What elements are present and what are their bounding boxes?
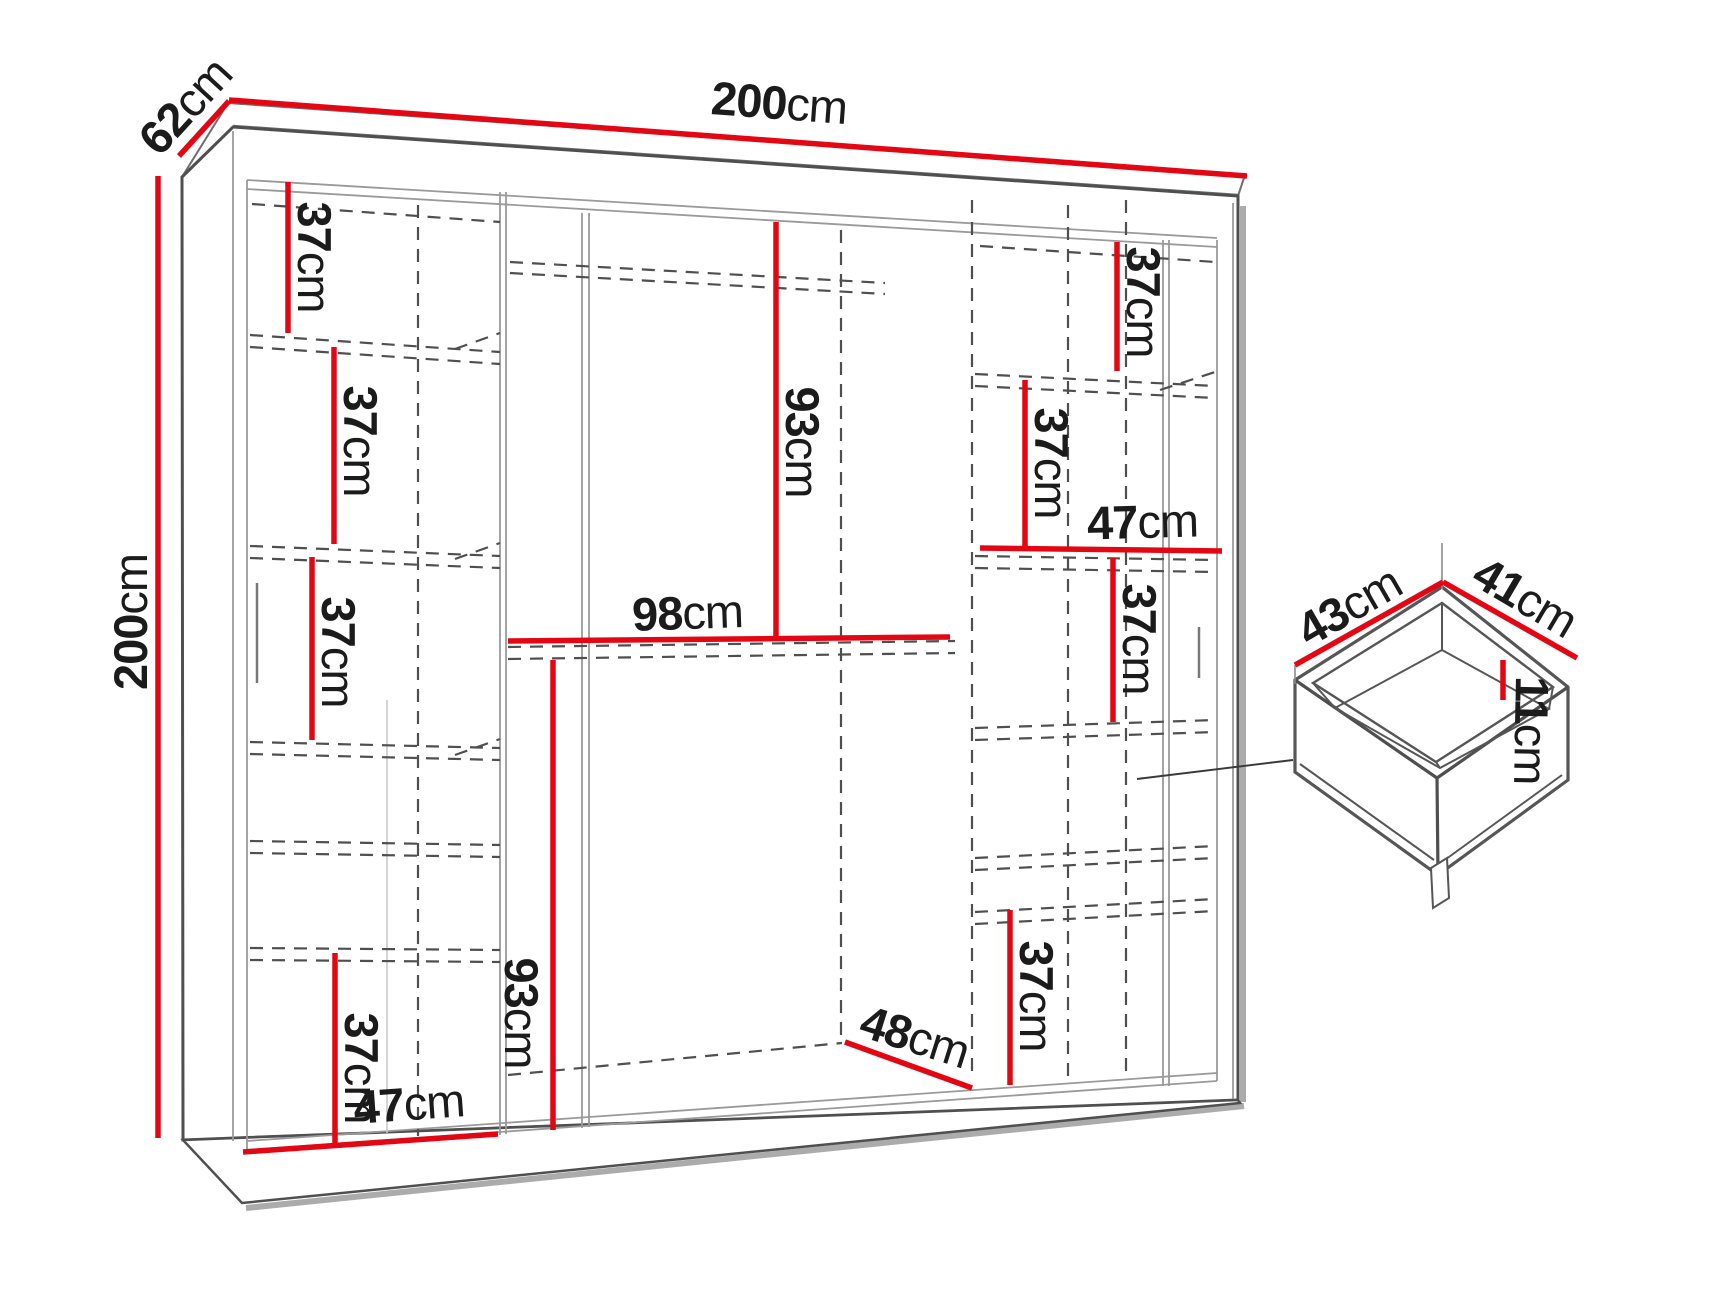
dim-label-right-shelf-3: 37cm: [1113, 584, 1166, 695]
dim-label-left-shelf-2: 37cm: [334, 386, 387, 497]
dim-label-left-shelf-1: 37cm: [288, 202, 341, 313]
dim-label-overall-height: 200cm: [104, 554, 157, 690]
dim-label-right-width: 47cm: [1086, 494, 1198, 550]
dim-label-middle-lower-height: 93cm: [495, 958, 548, 1069]
dim-label-right-shelf-4: 37cm: [1010, 941, 1063, 1052]
dim-label-drawer-inner-height: 11cm: [1504, 676, 1559, 785]
dim-label-right-shelf-2: 37cm: [1025, 408, 1078, 519]
dim-label-left-bottom-width: 47cm: [352, 1073, 466, 1134]
diagram-canvas: 200cm 62cm 200cm 37cm 37cm 37cm 37cm 47c…: [0, 0, 1726, 1295]
dim-label-middle-hanging-height: 93cm: [776, 387, 829, 498]
wardrobe-dimension-diagram: 200cm 62cm 200cm 37cm 37cm 37cm 37cm 47c…: [0, 0, 1726, 1295]
dim-label-left-shelf-3: 37cm: [312, 597, 365, 708]
dim-label-middle-shelf-width: 98cm: [631, 584, 744, 641]
dim-label-overall-width: 200cm: [709, 71, 849, 134]
dim-label-right-shelf-1: 37cm: [1117, 247, 1170, 358]
